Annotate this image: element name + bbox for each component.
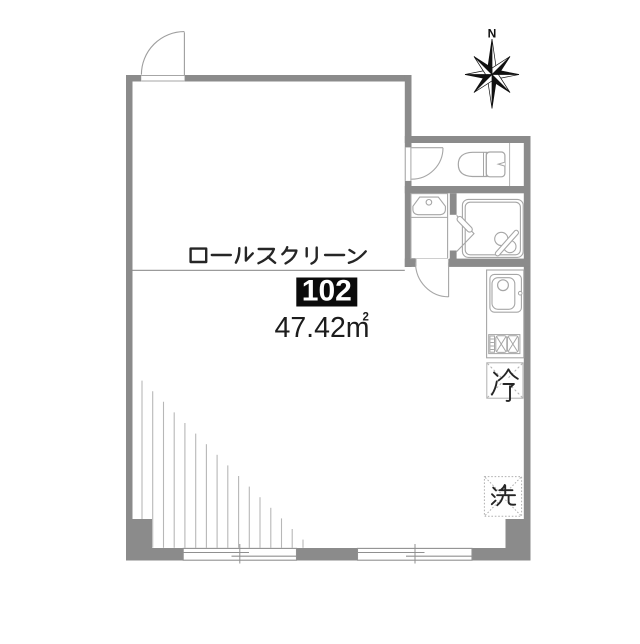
svg-text:2: 2	[363, 312, 369, 324]
svg-text:47.42m: 47.42m	[274, 312, 369, 344]
svg-text:102: 102	[302, 275, 352, 308]
svg-text:N: N	[488, 27, 497, 41]
